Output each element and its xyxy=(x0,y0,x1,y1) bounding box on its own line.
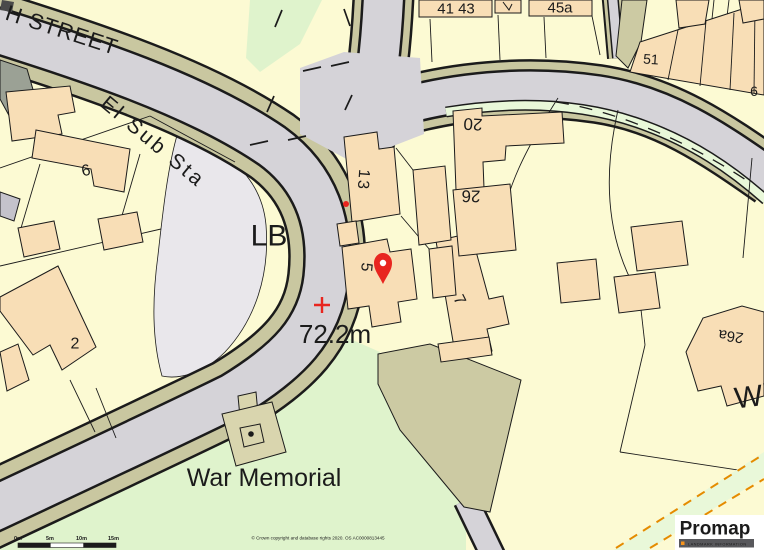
building-footprint xyxy=(676,0,709,28)
red-dot-marker xyxy=(343,201,349,207)
building-footprint xyxy=(739,0,764,23)
label-building-26: 26 xyxy=(461,186,480,205)
logo-wordmark: Promap xyxy=(680,519,751,540)
building-footprint xyxy=(413,166,451,245)
building-footprint xyxy=(557,259,600,303)
memorial-dot xyxy=(248,431,254,437)
scale-bar-segment xyxy=(83,543,116,548)
label-building-5: 5 xyxy=(357,262,375,273)
building-footprint xyxy=(631,221,688,271)
label-building-6-right: 6 xyxy=(750,83,758,99)
scale-tick-3: 15m xyxy=(108,536,119,542)
building-footprint xyxy=(495,0,521,13)
scale-tick-1: 5m xyxy=(46,536,54,542)
label-building-45a: 45a xyxy=(547,0,573,17)
label-building-2: 2 xyxy=(71,336,80,353)
building-footprint xyxy=(429,246,456,298)
scale-bar-segment xyxy=(18,543,51,548)
building-footprint xyxy=(337,221,359,246)
label-war-memorial: War Memorial xyxy=(187,464,342,492)
label-building-13: 13 xyxy=(354,169,372,192)
building-footprint xyxy=(614,272,660,313)
scale-tick-0: 0m xyxy=(14,536,22,542)
map-viewport[interactable]: H STREET El Sub Sta LB 72.2m War Memoria… xyxy=(0,0,764,550)
label-street-right: Wi xyxy=(733,378,764,415)
promap-logo: Promap LANDMARK INFORMATION xyxy=(675,515,764,550)
map-canvas[interactable]: H STREET El Sub Sta LB 72.2m War Memoria… xyxy=(0,0,764,550)
label-spot-height: 72.2m xyxy=(299,319,371,349)
label-lb: LB xyxy=(251,220,288,253)
label-building-20: 20 xyxy=(463,114,483,134)
logo-orange-dot-icon xyxy=(681,542,685,546)
copyright-notice: © Crown copyright and database rights 20… xyxy=(251,535,385,541)
label-building-41-43: 41 43 xyxy=(437,1,475,18)
logo-tagline: LANDMARK INFORMATION xyxy=(688,541,747,546)
label-building-26a: 26a xyxy=(717,326,745,346)
label-building-51: 51 xyxy=(643,50,660,67)
scale-tick-2: 10m xyxy=(76,536,87,542)
